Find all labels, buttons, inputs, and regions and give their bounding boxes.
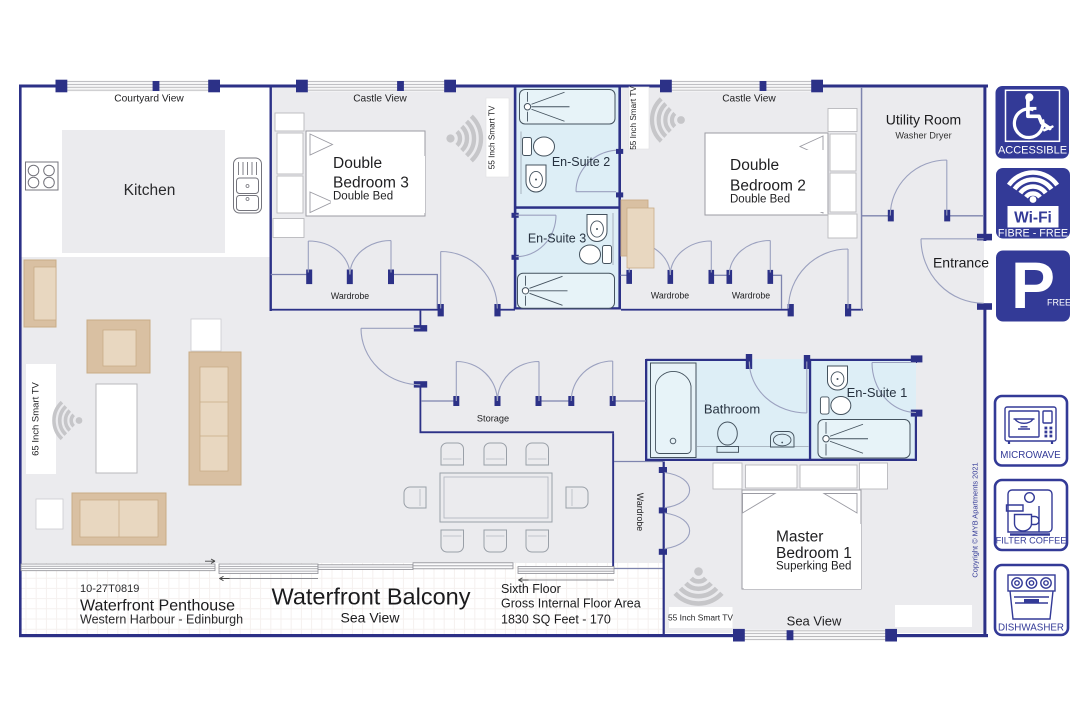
svg-text:FREE: FREE	[1047, 298, 1071, 308]
svg-text:Sixth Floor: Sixth Floor	[501, 582, 561, 596]
svg-text:Washer Dryer: Washer Dryer	[895, 131, 951, 141]
svg-text:En-Suite 3: En-Suite 3	[528, 232, 586, 246]
svg-text:Superking Bed: Superking Bed	[776, 561, 851, 573]
svg-text:65 Inch Smart TV: 65 Inch Smart TV	[31, 381, 42, 455]
svg-text:Wardrobe: Wardrobe	[331, 291, 369, 301]
svg-text:Gross Internal Floor Area: Gross Internal Floor Area	[501, 597, 641, 611]
svg-text:Castle View: Castle View	[722, 94, 776, 105]
svg-text:Storage: Storage	[477, 414, 509, 424]
svg-text:DISHWASHER: DISHWASHER	[998, 623, 1064, 634]
svg-text:ACCESSIBLE: ACCESSIBLE	[998, 145, 1067, 157]
svg-text:Wardrobe: Wardrobe	[651, 291, 689, 301]
svg-text:En-Suite 2: En-Suite 2	[552, 155, 610, 169]
svg-text:Bathroom: Bathroom	[704, 402, 760, 417]
svg-text:Copyright © MYB Apartments 202: Copyright © MYB Apartments 2021	[971, 462, 980, 577]
svg-text:Kitchen: Kitchen	[124, 182, 176, 199]
svg-text:Sea View: Sea View	[341, 610, 401, 626]
svg-text:55 Inch Smart TV: 55 Inch Smart TV	[488, 105, 497, 169]
svg-text:Double: Double	[333, 155, 382, 172]
svg-text:Utility Room: Utility Room	[886, 112, 961, 128]
svg-text:Double: Double	[730, 157, 779, 174]
svg-text:Western Harbour - Edinburgh: Western Harbour - Edinburgh	[80, 613, 243, 627]
svg-text:FIBRE - FREE: FIBRE - FREE	[998, 228, 1068, 240]
svg-text:Bedroom 1: Bedroom 1	[776, 545, 852, 562]
svg-text:Castle View: Castle View	[353, 94, 407, 105]
svg-text:Wi-Fi: Wi-Fi	[1014, 210, 1052, 227]
svg-text:Wardrobe: Wardrobe	[732, 291, 770, 301]
svg-text:Courtyard View: Courtyard View	[114, 94, 184, 105]
svg-text:En-Suite 1: En-Suite 1	[847, 385, 908, 400]
svg-text:Wardrobe: Wardrobe	[635, 493, 645, 531]
svg-text:MICROWAVE: MICROWAVE	[1000, 450, 1061, 461]
svg-text:P: P	[1011, 248, 1055, 322]
svg-text:Entrance: Entrance	[933, 255, 989, 271]
svg-text:10-27T0819: 10-27T0819	[80, 583, 139, 595]
svg-text:FILTER COFFEE: FILTER COFFEE	[996, 536, 1067, 546]
svg-text:Double Bed: Double Bed	[730, 194, 790, 206]
svg-text:Waterfront Balcony: Waterfront Balcony	[272, 584, 471, 610]
svg-text:Bedroom 3: Bedroom 3	[333, 175, 409, 192]
svg-text:Bedroom 2: Bedroom 2	[730, 178, 806, 195]
svg-text:55 Inch Smart TV: 55 Inch Smart TV	[668, 613, 733, 623]
svg-text:Master: Master	[776, 529, 823, 546]
svg-text:Double Bed: Double Bed	[333, 191, 393, 203]
svg-text:Sea View: Sea View	[787, 614, 842, 629]
svg-text:55 Inch Smart TV: 55 Inch Smart TV	[629, 86, 638, 150]
svg-text:1830 SQ Feet - 170: 1830 SQ Feet - 170	[501, 613, 611, 627]
